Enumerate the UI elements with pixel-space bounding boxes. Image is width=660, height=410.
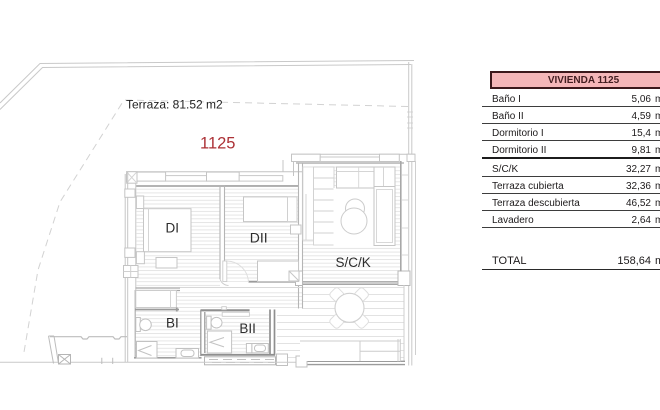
svg-text:DII: DII — [250, 230, 268, 246]
svg-text:1125: 1125 — [200, 135, 235, 153]
svg-text:DI: DI — [166, 220, 180, 235]
svg-text:BII: BII — [239, 321, 256, 336]
svg-text:BI: BI — [166, 316, 179, 331]
svg-text:S/C/K: S/C/K — [336, 255, 371, 270]
svg-text:Terraza: 81.52 m2: Terraza: 81.52 m2 — [126, 98, 223, 112]
